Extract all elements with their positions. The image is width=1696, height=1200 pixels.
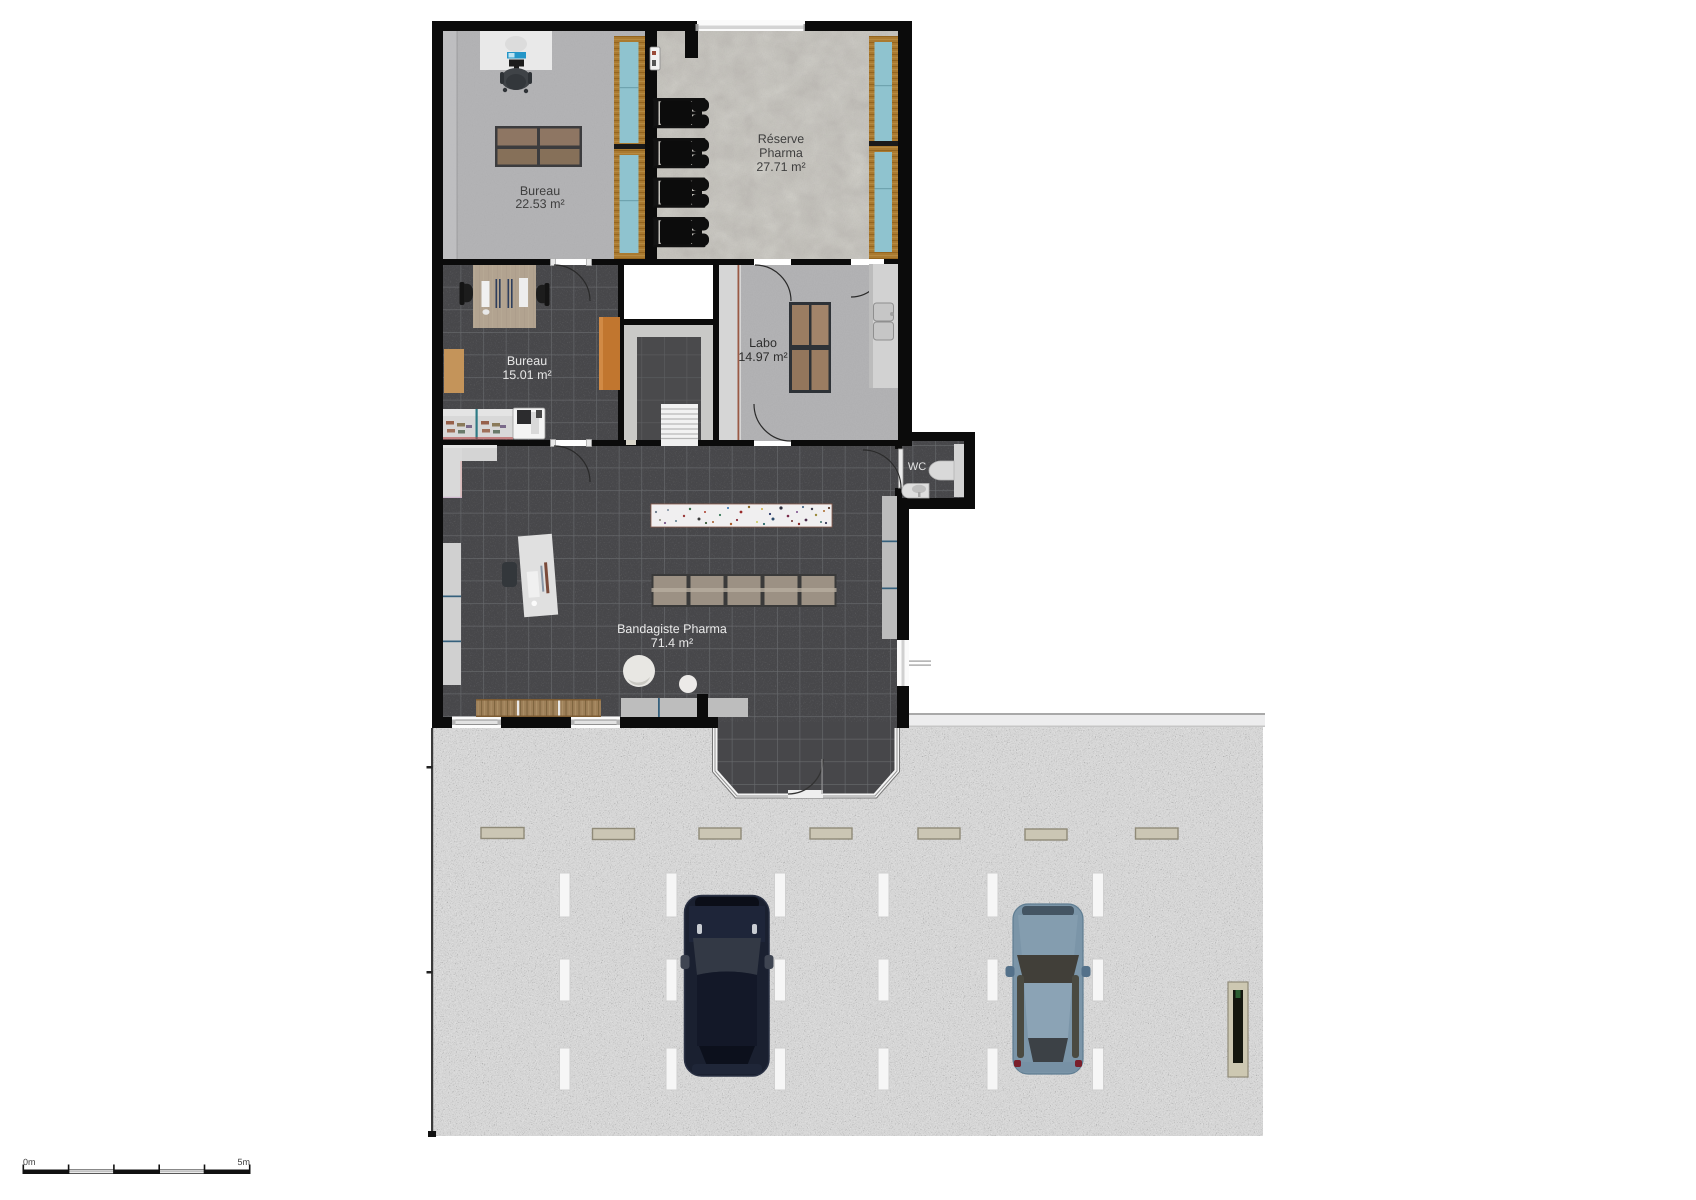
- svg-text:Labo: Labo: [749, 336, 777, 350]
- svg-text:22.53 m²: 22.53 m²: [515, 197, 564, 211]
- svg-text:WC: WC: [908, 461, 926, 473]
- svg-text:0m: 0m: [23, 1157, 36, 1167]
- svg-text:15.01 m²: 15.01 m²: [502, 368, 551, 382]
- svg-text:14.97 m²: 14.97 m²: [738, 350, 787, 364]
- svg-text:Bureau: Bureau: [507, 354, 547, 368]
- svg-text:Réserve: Réserve: [758, 132, 805, 146]
- svg-text:5m: 5m: [237, 1157, 250, 1167]
- svg-text:Pharma: Pharma: [759, 146, 803, 160]
- svg-text:Bureau: Bureau: [520, 184, 560, 198]
- svg-text:71.4 m²: 71.4 m²: [651, 636, 693, 650]
- svg-text:Bandagiste Pharma: Bandagiste Pharma: [617, 622, 727, 636]
- svg-text:27.71 m²: 27.71 m²: [756, 160, 805, 174]
